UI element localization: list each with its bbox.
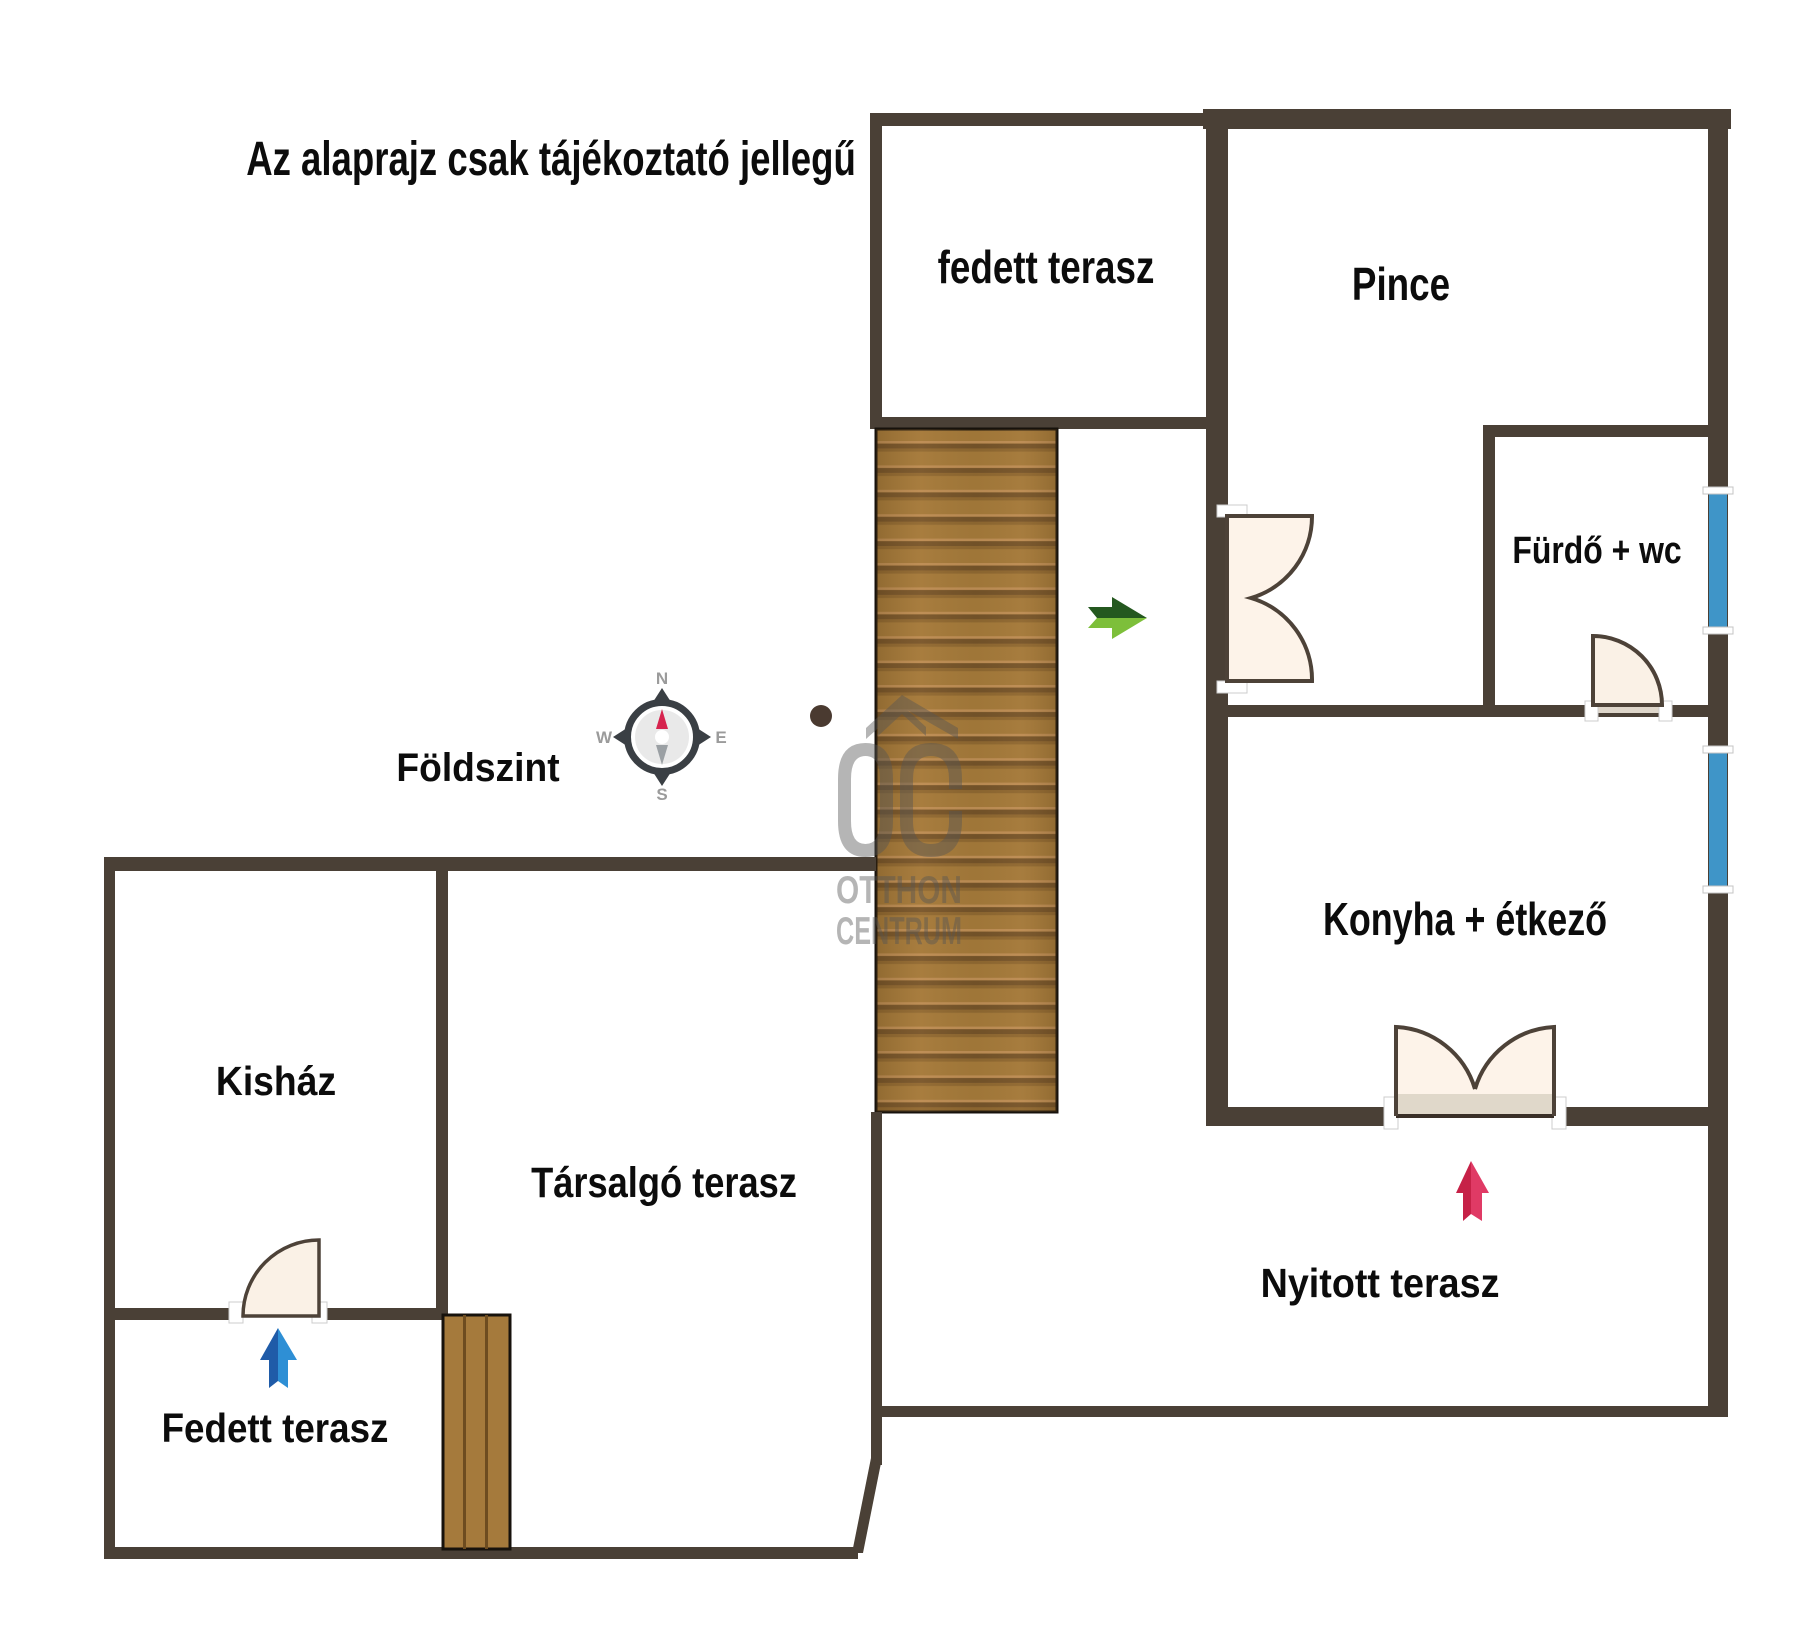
svg-text:OTTHON: OTTHON — [836, 869, 962, 912]
svg-text:W: W — [596, 728, 613, 747]
svg-text:N: N — [656, 669, 668, 688]
svg-text:E: E — [715, 728, 726, 747]
svg-text:fedett terasz: fedett terasz — [938, 241, 1155, 293]
svg-text:Konyha + étkező: Konyha + étkező — [1323, 894, 1607, 945]
svg-text:Fürdő + wc: Fürdő + wc — [1512, 529, 1681, 571]
svg-text:Fedett terasz: Fedett terasz — [162, 1406, 389, 1451]
svg-text:CENTRUM: CENTRUM — [836, 908, 962, 952]
svg-text:S: S — [656, 785, 667, 804]
svg-text:Földszint: Földszint — [396, 746, 559, 791]
svg-text:Az alaprajz csak tájékoztató j: Az alaprajz csak tájékoztató jellegű — [246, 132, 856, 186]
svg-text:Nyitott terasz: Nyitott terasz — [1261, 1261, 1500, 1307]
svg-text:Kisház: Kisház — [216, 1059, 336, 1104]
svg-text:Pince: Pince — [1352, 258, 1450, 310]
svg-text:Társalgó terasz: Társalgó terasz — [531, 1159, 797, 1207]
